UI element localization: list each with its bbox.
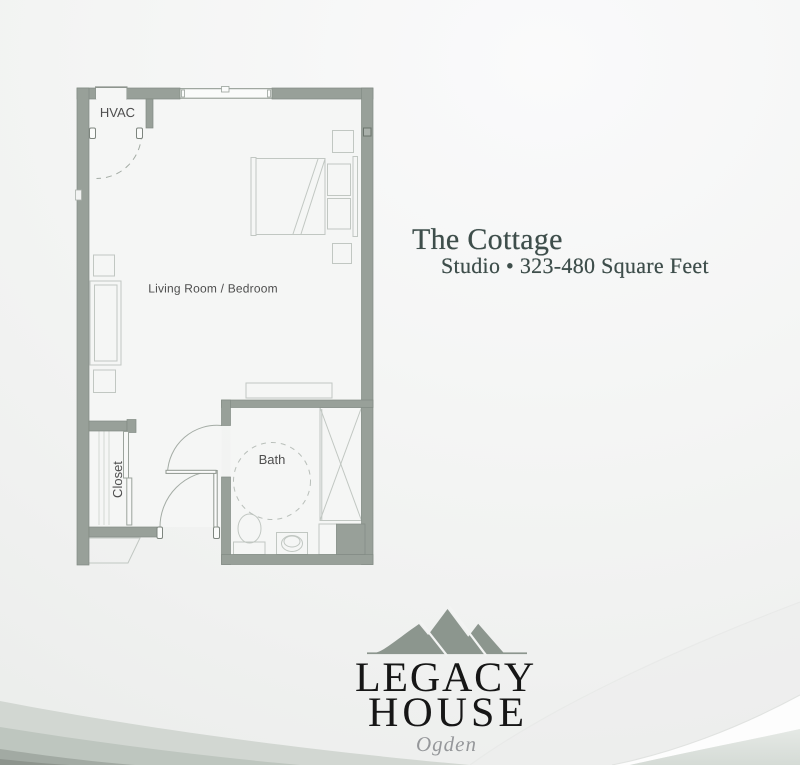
svg-text:HVAC: HVAC [100,105,135,120]
svg-text:Bath: Bath [259,452,286,467]
svg-text:Living Room / Bedroom: Living Room / Bedroom [148,282,278,296]
svg-text:Closet: Closet [110,461,125,498]
